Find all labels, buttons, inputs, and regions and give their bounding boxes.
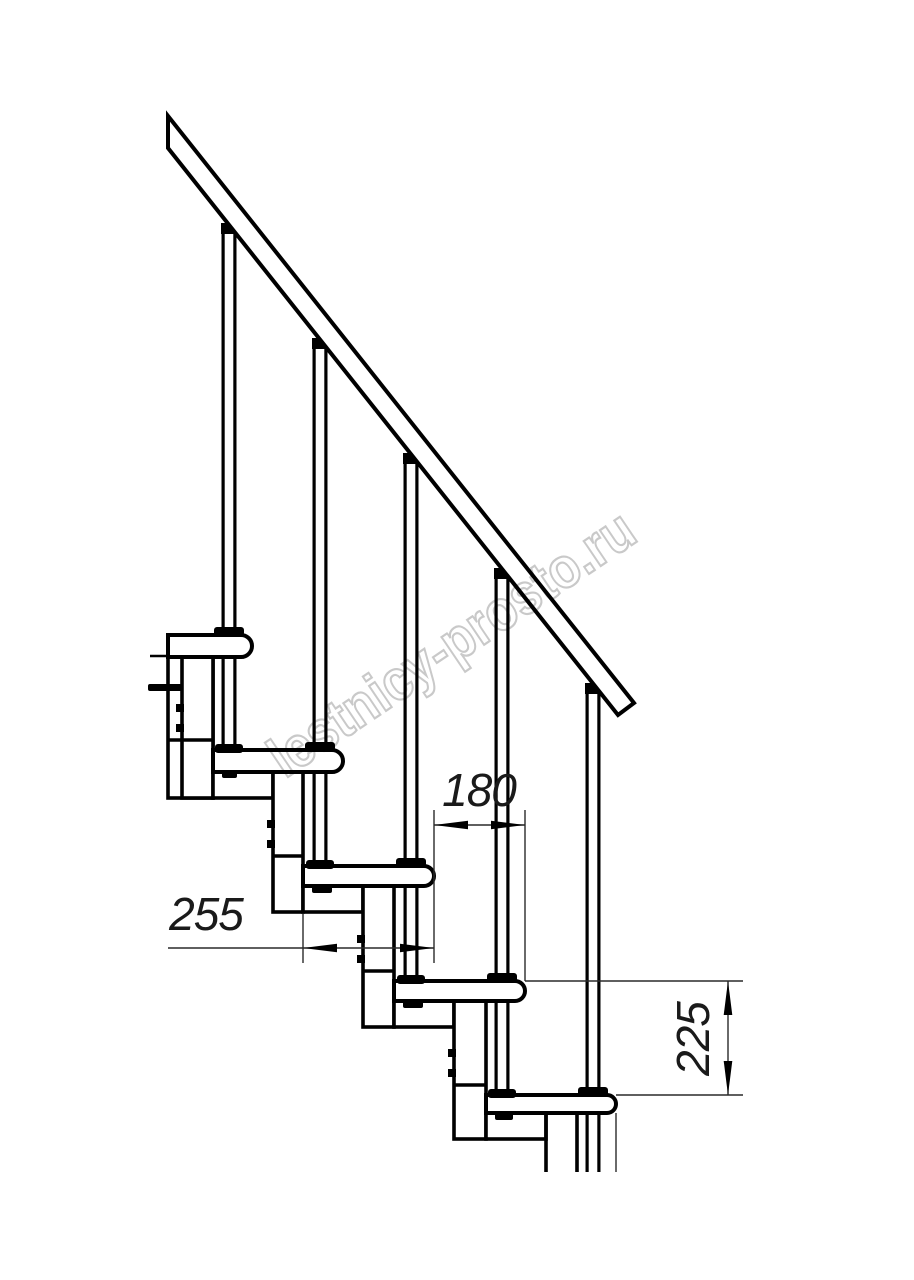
column <box>363 886 394 1027</box>
handrail <box>168 116 634 715</box>
column-bolt <box>357 955 365 963</box>
column-bolt <box>448 1049 456 1057</box>
baluster-clamp <box>487 973 517 982</box>
drawing-sheet: 180 255 225 lestnicy-prosto.ru <box>0 0 914 1280</box>
handrail-profile <box>168 116 634 715</box>
column <box>182 657 213 798</box>
bolt-tab <box>495 1113 513 1120</box>
baluster-clamp <box>214 627 244 636</box>
baluster-clamp <box>578 1087 608 1096</box>
arrow-up <box>724 981 733 1015</box>
dimension-label-step-rise: 225 <box>667 1001 719 1077</box>
column <box>546 1113 577 1172</box>
tread <box>168 635 252 657</box>
bolt-tab <box>148 684 182 691</box>
baluster-base-flange <box>215 744 243 753</box>
baluster-base-flange <box>306 860 334 869</box>
column-bolt <box>176 704 184 712</box>
dimension-label-tread-depth: 255 <box>168 888 244 940</box>
column-bolt <box>267 820 275 828</box>
bolt-tab <box>312 886 332 893</box>
baluster <box>222 233 237 750</box>
dimension-label-step-run: 180 <box>442 764 517 816</box>
column <box>454 1001 486 1139</box>
baluster-clamp <box>396 858 426 867</box>
arrow-down <box>724 1061 733 1095</box>
baluster <box>404 463 419 981</box>
column <box>273 772 303 912</box>
column-bolt <box>448 1069 456 1077</box>
bolt-tab <box>403 1001 423 1008</box>
bolt-tab <box>222 772 237 778</box>
baluster <box>313 348 328 866</box>
baluster-base-flange <box>488 1089 516 1098</box>
column-bolt <box>267 840 275 848</box>
arrow-left <box>434 821 468 830</box>
baluster-base-flange <box>397 975 425 984</box>
column-bolt <box>176 724 184 732</box>
staircase-technical-drawing: 180 255 225 lestnicy-prosto.ru <box>0 0 914 1280</box>
baluster <box>495 578 510 1095</box>
column-bolt <box>357 935 365 943</box>
arrow-left <box>303 944 337 953</box>
